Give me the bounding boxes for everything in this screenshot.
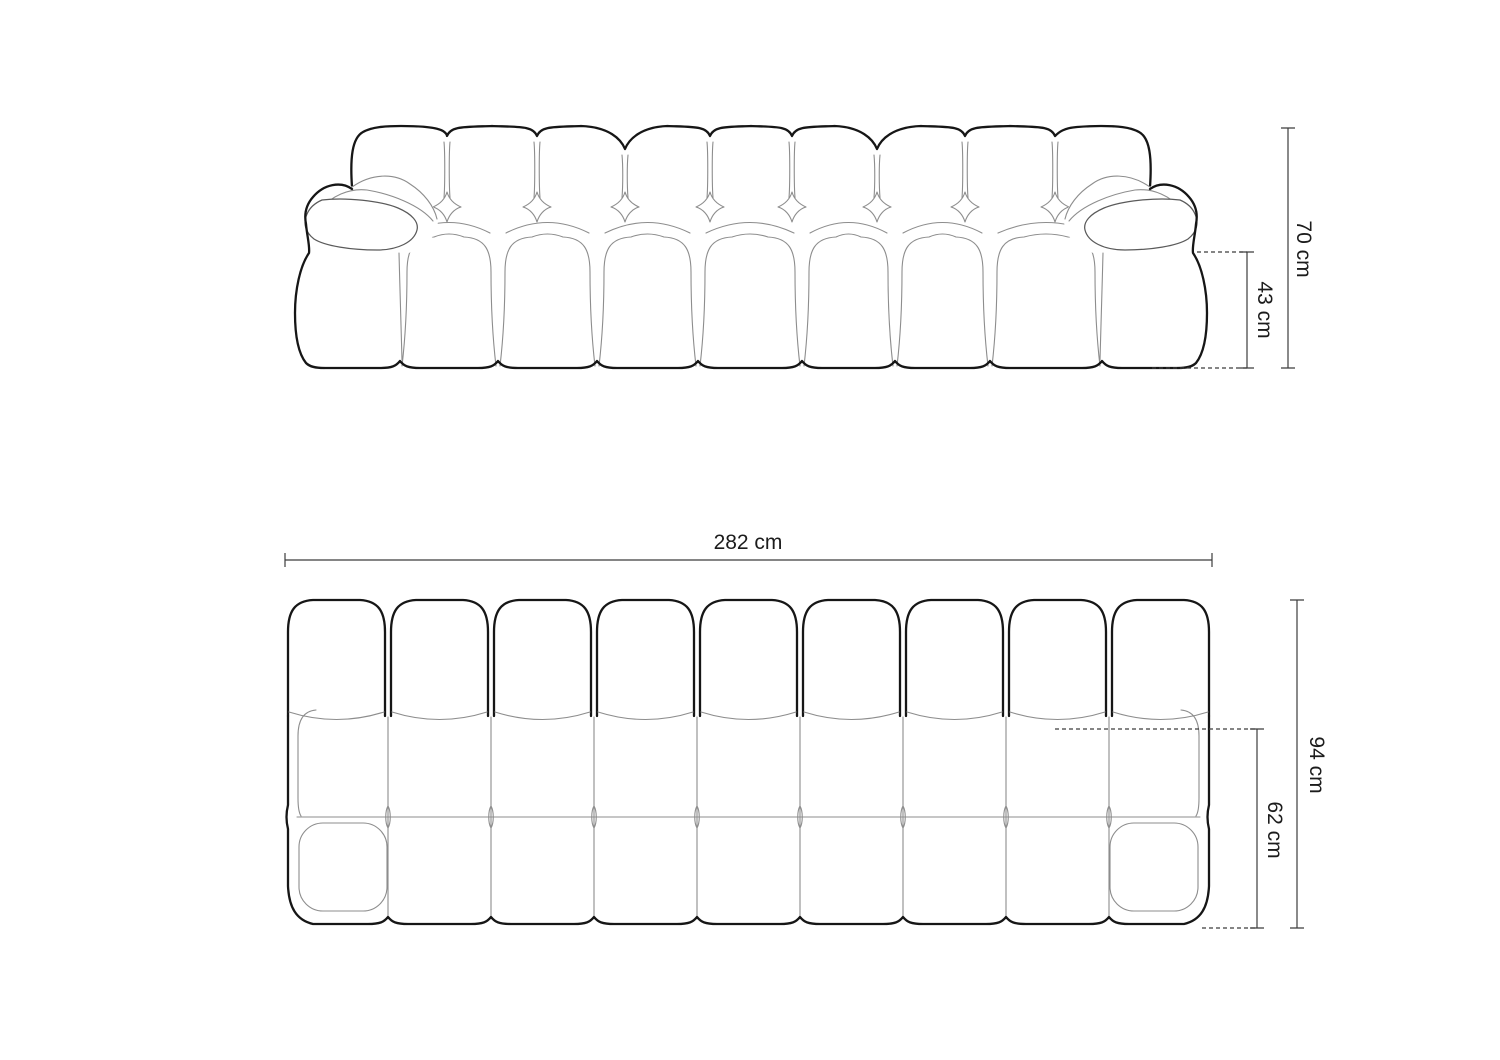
back-cushion-fill	[880, 127, 962, 212]
sofa-dimension-diagram: 282 cm 70 cm 43 cm 94 cm 62 cm	[0, 0, 1500, 1060]
top-right-arm-inner-seam	[1181, 710, 1199, 816]
depth-dimension-label: 94 cm	[1305, 736, 1328, 793]
back-cushion-seam	[794, 142, 795, 198]
top-back-cushion-fill	[1112, 600, 1209, 723]
seat-top-seam	[706, 223, 794, 234]
seat-top-seam	[506, 223, 589, 234]
back-cushion-seam	[967, 142, 968, 198]
left-armrest-base-seam	[399, 253, 402, 360]
seat-cushion-fill	[402, 234, 496, 366]
back-cushion-fill	[968, 127, 1052, 212]
top-back-cushion-fill	[494, 600, 591, 723]
top-outer-edge	[287, 716, 1210, 924]
top-back-cushion-fill	[803, 600, 900, 723]
seat-top-seam	[903, 223, 982, 234]
top-back-cushion-fill	[1009, 600, 1106, 723]
right-armrest-base-seam	[1100, 253, 1103, 360]
back-cushion-fill	[540, 127, 622, 212]
back-cushion-fill	[450, 127, 534, 212]
back-cushion-seam	[449, 142, 450, 198]
seat-cushion-fill	[897, 234, 988, 366]
top-left-arm-inner-rect	[299, 823, 387, 911]
seat-top-seam	[810, 223, 887, 234]
top-back-cushion-fill	[391, 600, 488, 723]
back-cushion-seam	[874, 155, 875, 198]
top-back-cushion-fill	[597, 600, 694, 723]
seat-cushion-fill	[804, 234, 893, 366]
back-cushion-seam	[627, 155, 628, 198]
back-cushion-fill	[713, 127, 789, 212]
seat-cushion-fill	[992, 234, 1100, 366]
seat-depth-dimension-label: 62 cm	[1263, 801, 1286, 858]
top-back-cushion-fill	[288, 600, 385, 723]
height-dimension-label: 70 cm	[1292, 220, 1315, 277]
seat-cushion-fill	[599, 234, 696, 366]
width-dimension-label: 282 cm	[714, 531, 783, 554]
back-cushion-fill	[795, 127, 874, 212]
top-right-arm-inner-rect	[1110, 823, 1198, 911]
top-back-cushion-fill	[700, 600, 797, 723]
back-cushion-seam	[789, 142, 790, 198]
back-cushion-seam	[444, 142, 445, 198]
sofa-front-view	[293, 126, 1209, 368]
back-cushion-seam	[879, 155, 880, 198]
back-cushion-fill	[628, 127, 707, 212]
back-cushion-seam	[534, 142, 535, 198]
seat-cushion-fill	[700, 234, 800, 366]
seat-top-seam	[605, 223, 690, 234]
sofa-top-view	[287, 600, 1210, 924]
back-cushion-seam	[712, 142, 713, 198]
back-cushion-seam	[539, 142, 540, 198]
seat-height-dimension-label: 43 cm	[1253, 281, 1276, 338]
top-back-cushion-fill	[906, 600, 1003, 723]
back-cushion-seam	[622, 155, 623, 198]
seat-cushion-fill	[500, 234, 595, 366]
back-cushion-seam	[1057, 142, 1058, 198]
back-cushion-seam	[707, 142, 708, 198]
back-cushion-seam	[1052, 142, 1053, 198]
top-left-arm-inner-seam	[298, 710, 316, 816]
back-cushion-seam	[962, 142, 963, 198]
